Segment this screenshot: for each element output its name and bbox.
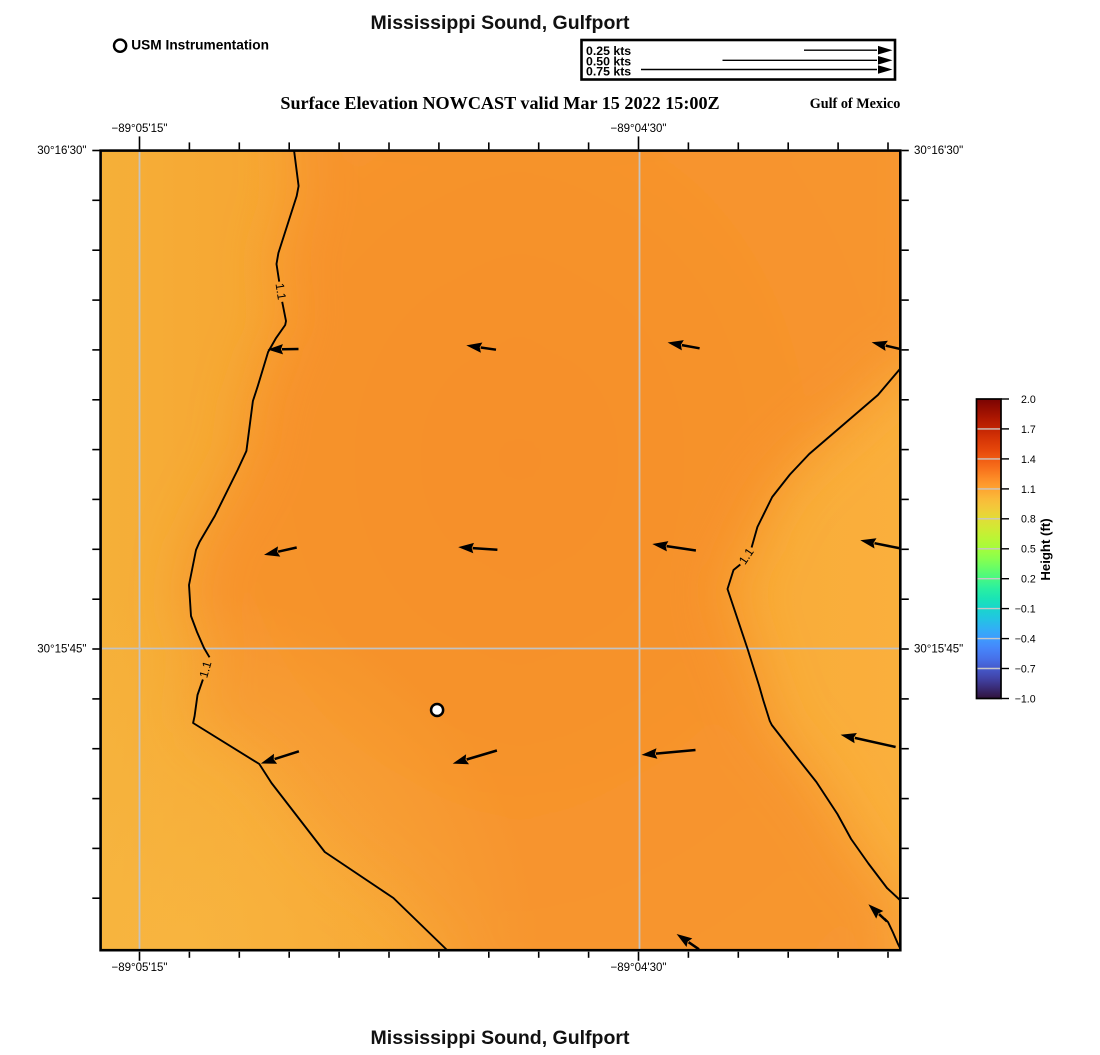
svg-text:−89°05'15": −89°05'15"	[112, 962, 168, 974]
svg-text:1.1: 1.1	[272, 282, 288, 301]
svg-text:1.1: 1.1	[1021, 484, 1036, 496]
svg-text:−0.7: −0.7	[1015, 663, 1036, 675]
svg-text:−0.1: −0.1	[1015, 604, 1036, 616]
svg-text:−1.0: −1.0	[1015, 693, 1036, 705]
svg-text:Mississippi Sound, Gulfport: Mississippi Sound, Gulfport	[371, 1027, 630, 1049]
svg-text:30°15'45": 30°15'45"	[914, 644, 963, 656]
svg-text:−0.4: −0.4	[1015, 634, 1036, 646]
svg-text:Gulf of Mexico: Gulf of Mexico	[810, 96, 901, 112]
svg-text:2.0: 2.0	[1021, 394, 1036, 406]
svg-text:0.75 kts: 0.75 kts	[586, 65, 631, 79]
svg-text:30°16'30": 30°16'30"	[914, 145, 963, 157]
svg-text:30°16'30": 30°16'30"	[37, 145, 86, 157]
svg-text:0.5: 0.5	[1021, 544, 1036, 556]
svg-text:1.4: 1.4	[1021, 454, 1036, 466]
svg-text:USM Instrumentation: USM Instrumentation	[131, 38, 269, 53]
svg-text:Mississippi Sound, Gulfport: Mississippi Sound, Gulfport	[371, 12, 630, 34]
svg-text:−89°04'30": −89°04'30"	[611, 962, 667, 974]
svg-text:30°15'45": 30°15'45"	[37, 644, 86, 656]
svg-text:0.2: 0.2	[1021, 574, 1036, 586]
svg-text:0.8: 0.8	[1021, 514, 1036, 526]
svg-text:Surface Elevation NOWCAST vali: Surface Elevation NOWCAST valid Mar 15 2…	[280, 93, 719, 113]
svg-text:Height (ft): Height (ft)	[1038, 518, 1053, 580]
svg-text:1.7: 1.7	[1021, 424, 1036, 436]
svg-text:−89°05'15": −89°05'15"	[112, 123, 168, 135]
svg-text:−89°04'30": −89°04'30"	[611, 123, 667, 135]
